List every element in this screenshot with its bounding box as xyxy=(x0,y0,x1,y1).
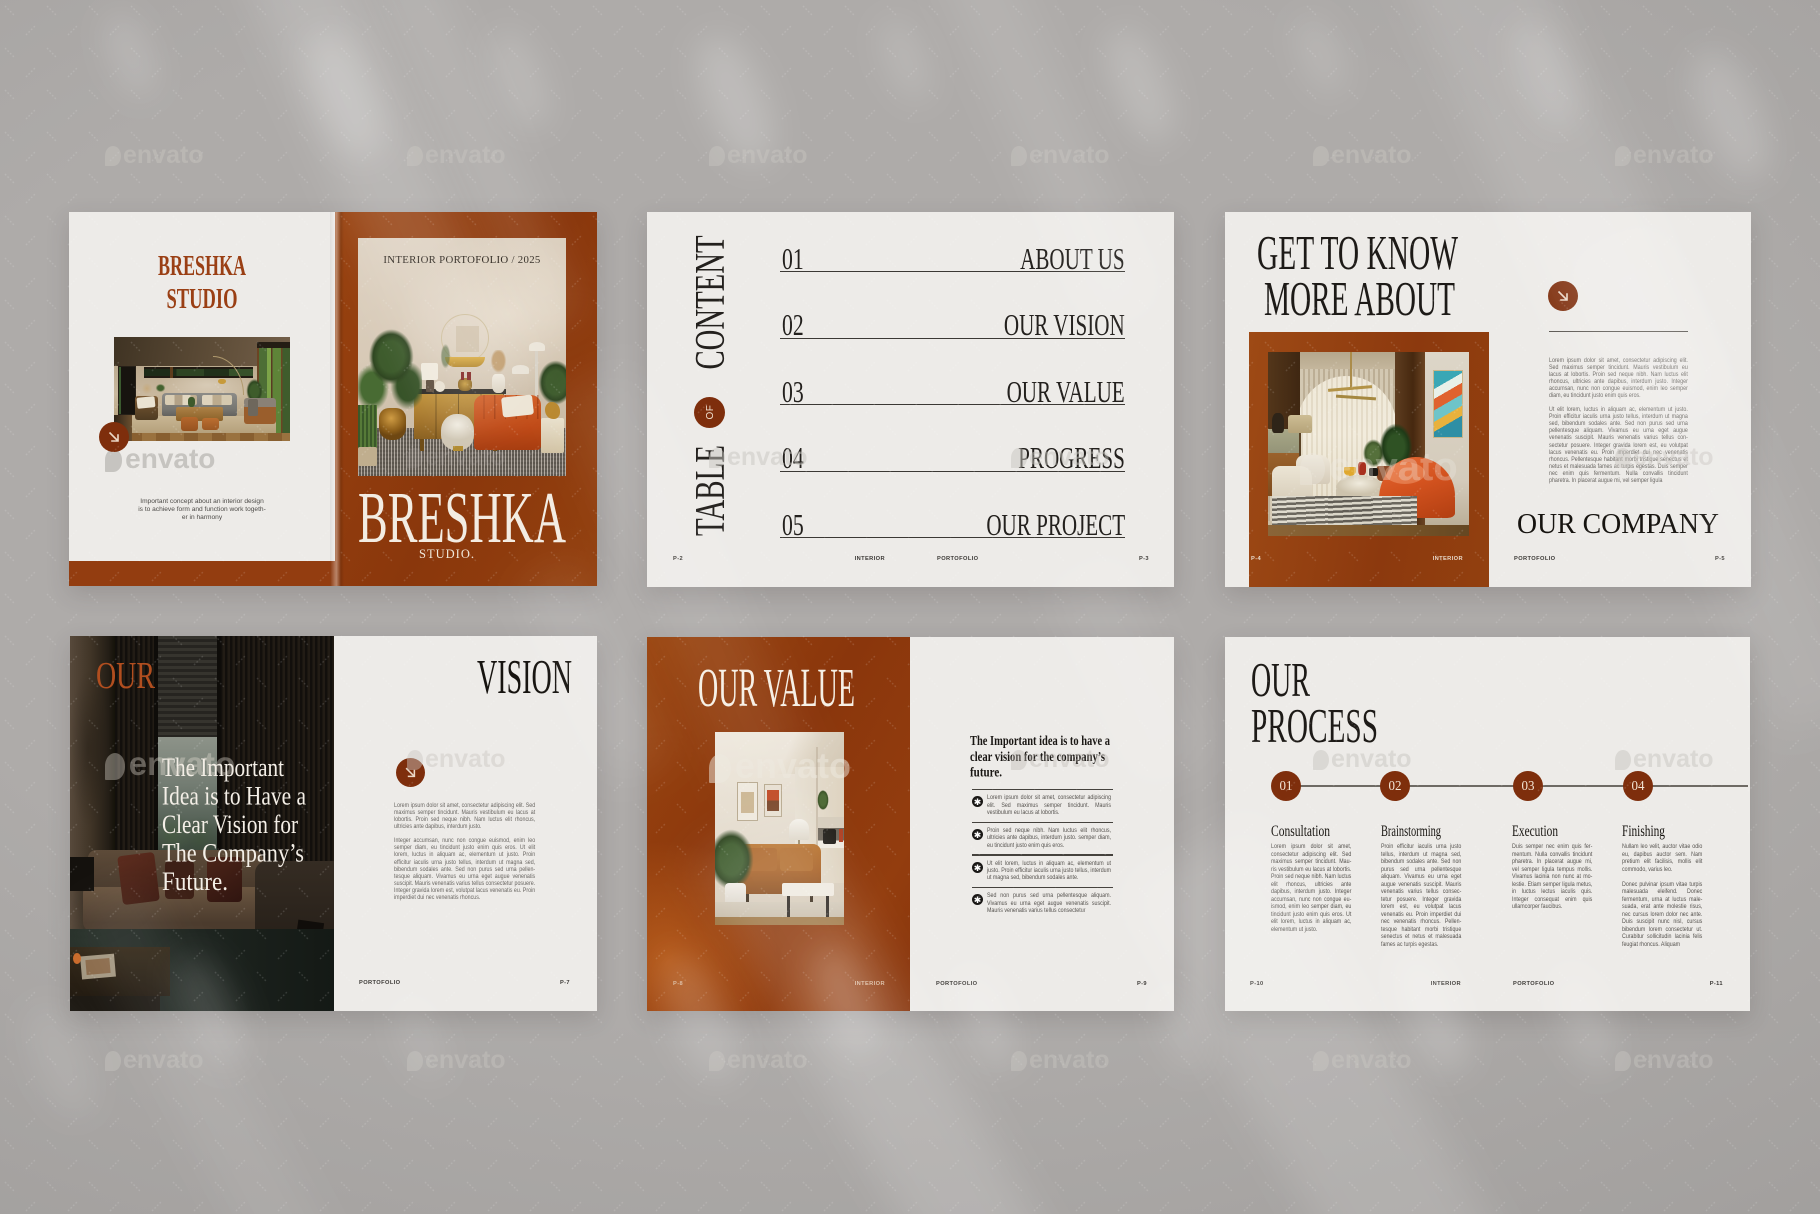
svg-text:VISION: VISION xyxy=(477,650,572,698)
svg-text:02: 02 xyxy=(1389,779,1402,794)
svg-text:Clear Vision for: Clear Vision for xyxy=(162,810,298,839)
svg-text:MORE ABOUT: MORE ABOUT xyxy=(1264,271,1455,323)
svg-text:TABLE: TABLE xyxy=(688,445,733,536)
svg-text:clear vision for the company’s: clear vision for the company’s xyxy=(970,749,1105,764)
svg-text:✱: ✱ xyxy=(974,830,982,840)
svg-text:Idea is to Have a: Idea is to Have a xyxy=(162,782,306,811)
svg-text:BRESHKA: BRESHKA xyxy=(358,484,566,550)
svg-text:✱: ✱ xyxy=(974,895,982,905)
svg-text:PROCESS: PROCESS xyxy=(1251,698,1378,753)
svg-text:CONTENT: CONTENT xyxy=(688,236,733,370)
svg-text:04: 04 xyxy=(1632,779,1645,794)
svg-text:The Company’s: The Company’s xyxy=(162,839,304,868)
svg-text:OUR COMPANY: OUR COMPANY xyxy=(1517,508,1719,540)
svg-text:future.: future. xyxy=(970,765,1002,780)
svg-text:BRESHKA: BRESHKA xyxy=(158,250,246,282)
svg-text:OUR VALUE: OUR VALUE xyxy=(698,659,855,715)
svg-text:OF: OF xyxy=(705,405,716,420)
svg-text:✱: ✱ xyxy=(974,797,982,807)
svg-text:STUDIO: STUDIO xyxy=(167,283,238,312)
svg-text:Execution: Execution xyxy=(1512,823,1558,840)
svg-text:OUR: OUR xyxy=(96,655,155,693)
svg-text:Finishing: Finishing xyxy=(1622,823,1665,840)
svg-text:Brainstorming: Brainstorming xyxy=(1381,823,1441,840)
svg-text:✱: ✱ xyxy=(974,863,982,873)
svg-text:The Important idea is to have: The Important idea is to have a xyxy=(970,734,1110,748)
svg-text:03: 03 xyxy=(1522,779,1535,794)
svg-text:Future.: Future. xyxy=(162,867,228,896)
svg-text:Consultation: Consultation xyxy=(1271,823,1330,840)
svg-text:01: 01 xyxy=(1280,779,1293,794)
svg-text:The Important: The Important xyxy=(162,755,285,782)
